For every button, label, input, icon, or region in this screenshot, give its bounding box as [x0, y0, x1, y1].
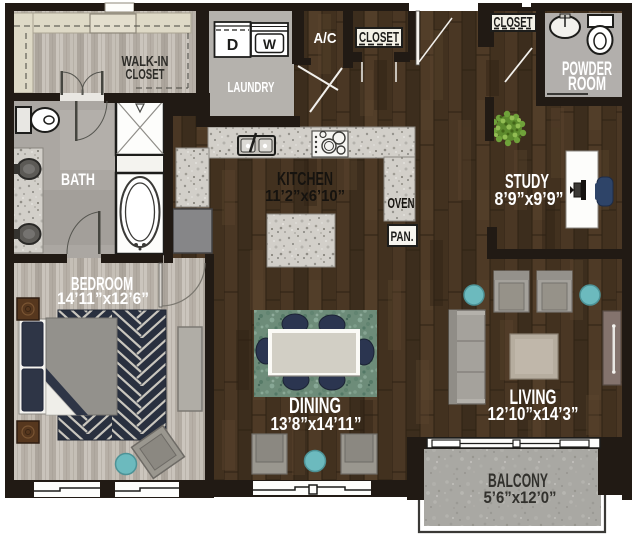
svg-text:CLOSET: CLOSET: [126, 66, 165, 83]
svg-text:14’11”x12’6”: 14’11”x12’6”: [57, 289, 149, 308]
svg-text:A/C: A/C: [314, 30, 337, 47]
svg-text:11’2”x6’10”: 11’2”x6’10”: [265, 188, 345, 205]
svg-text:5’6”x12’0”: 5’6”x12’0”: [484, 488, 557, 507]
svg-text:W: W: [263, 36, 277, 52]
svg-text:D: D: [227, 37, 239, 54]
svg-text:LAUNDRY: LAUNDRY: [228, 79, 275, 96]
svg-text:12’10”x14’3”: 12’10”x14’3”: [488, 404, 579, 424]
svg-text:PAN.: PAN.: [391, 228, 414, 244]
svg-text:8’9”x9’9”: 8’9”x9’9”: [495, 189, 564, 209]
svg-text:CLOSET: CLOSET: [359, 29, 399, 46]
svg-text:ROOM: ROOM: [568, 74, 606, 95]
svg-text:13’8”x14’11”: 13’8”x14’11”: [271, 414, 362, 434]
svg-text:OVEN: OVEN: [388, 195, 415, 212]
svg-text:KITCHEN: KITCHEN: [277, 169, 333, 189]
svg-text:BATH: BATH: [61, 170, 95, 189]
